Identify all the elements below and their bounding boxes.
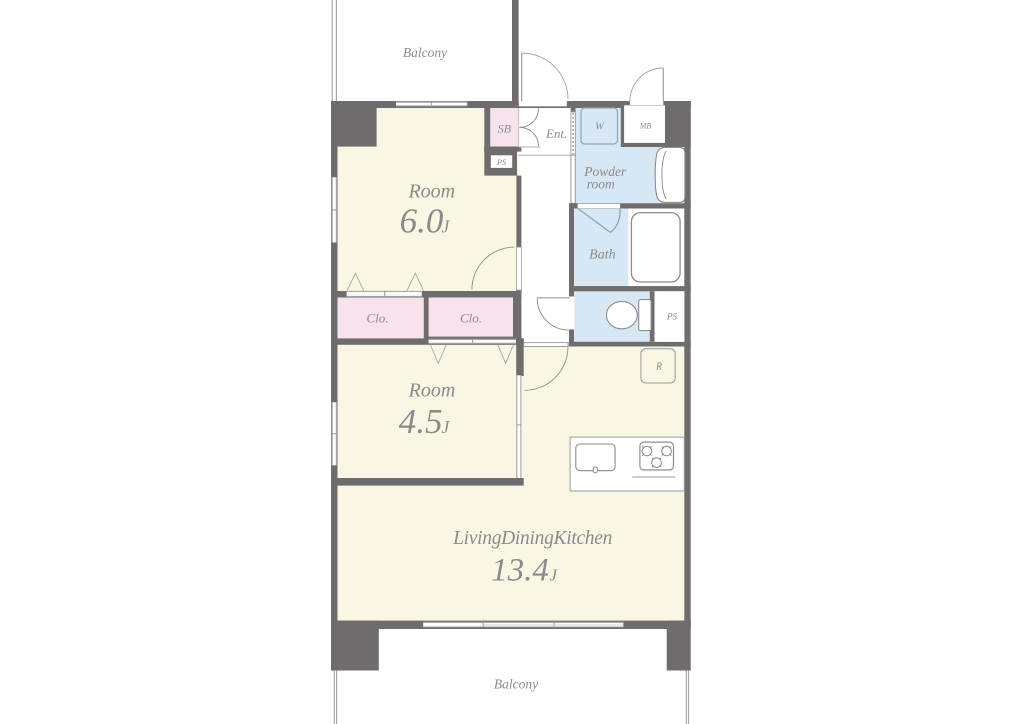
svg-text:PS: PS [666, 312, 677, 322]
svg-text:4.5: 4.5 [399, 402, 443, 441]
svg-text:R: R [655, 362, 662, 373]
svg-text:J: J [442, 417, 451, 437]
svg-text:PS: PS [496, 157, 507, 167]
svg-text:Clo.: Clo. [460, 311, 482, 326]
svg-text:Room: Room [408, 380, 456, 402]
svg-text:6.0: 6.0 [400, 202, 444, 241]
svg-text:room: room [587, 177, 615, 192]
svg-text:J: J [442, 217, 451, 237]
svg-text:LivingDiningKitchen: LivingDiningKitchen [452, 528, 612, 549]
svg-text:Bath: Bath [589, 248, 615, 263]
svg-text:MB: MB [639, 122, 652, 131]
svg-text:Room: Room [407, 180, 455, 202]
svg-text:13.4: 13.4 [491, 552, 549, 588]
svg-text:Clo.: Clo. [366, 311, 388, 326]
svg-text:SB: SB [498, 122, 512, 136]
svg-text:Balcony: Balcony [494, 677, 538, 692]
svg-text:W: W [595, 122, 605, 133]
svg-text:Balcony: Balcony [403, 45, 447, 60]
svg-text:Ent.: Ent. [545, 126, 567, 141]
